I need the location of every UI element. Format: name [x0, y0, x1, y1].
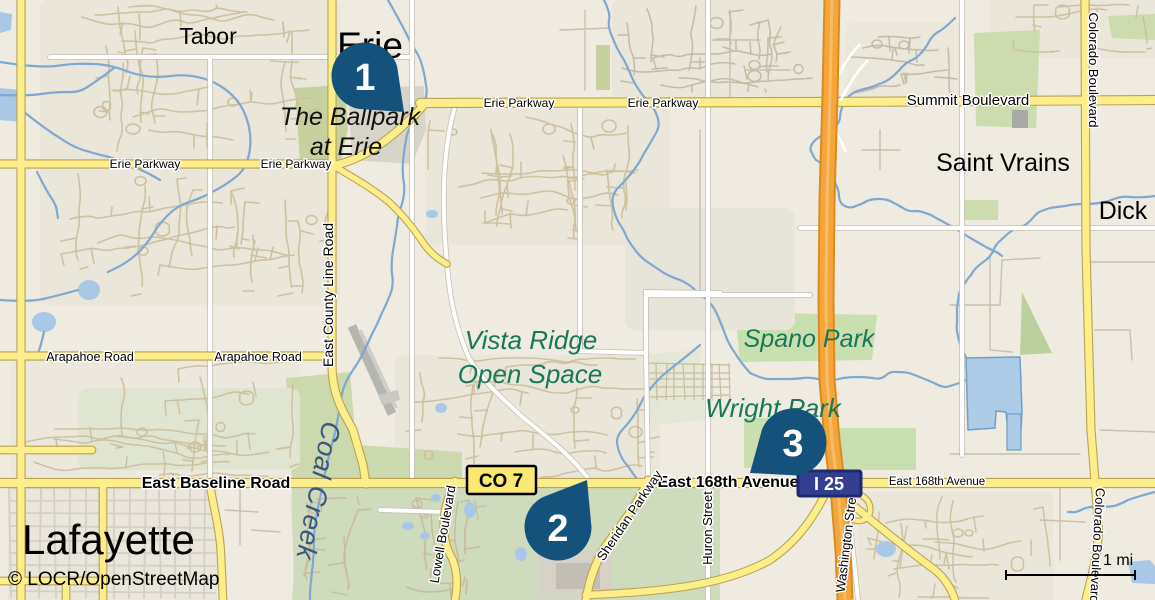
svg-text:CO 7: CO 7 — [479, 471, 523, 492]
svg-text:Huron Street: Huron Street — [700, 491, 715, 565]
svg-text:East County Line Road: East County Line Road — [320, 223, 336, 367]
svg-text:2: 2 — [547, 508, 568, 550]
svg-text:1: 1 — [354, 57, 375, 99]
svg-text:Lafayette: Lafayette — [22, 516, 195, 563]
svg-text:at Erie: at Erie — [310, 133, 382, 161]
svg-text:Summit Boulevard: Summit Boulevard — [907, 92, 1030, 109]
svg-text:Dick: Dick — [1099, 197, 1148, 225]
svg-text:Arapahoe Road: Arapahoe Road — [46, 350, 134, 364]
svg-text:East 168th Avenue: East 168th Avenue — [889, 476, 985, 488]
svg-text:Spano Park: Spano Park — [744, 325, 876, 353]
svg-text:© LOCR/OpenStreetMap: © LOCR/OpenStreetMap — [8, 569, 219, 590]
svg-text:I 25: I 25 — [814, 474, 844, 494]
svg-text:Saint Vrains: Saint Vrains — [936, 149, 1070, 177]
svg-text:Erie Parkway: Erie Parkway — [484, 96, 555, 110]
svg-text:Erie Parkway: Erie Parkway — [628, 96, 699, 110]
svg-text:3: 3 — [782, 423, 803, 465]
svg-text:East Baseline Road: East Baseline Road — [142, 475, 291, 492]
svg-text:Tabor: Tabor — [179, 23, 237, 49]
svg-text:Erie Parkway: Erie Parkway — [110, 157, 181, 171]
svg-text:East 168th Avenue: East 168th Avenue — [657, 474, 798, 491]
svg-text:Colorado Boulevard: Colorado Boulevard — [1086, 13, 1101, 128]
svg-text:Open Space: Open Space — [458, 359, 603, 389]
svg-text:1 mi: 1 mi — [1103, 552, 1133, 569]
svg-text:Arapahoe Road: Arapahoe Road — [214, 350, 302, 364]
svg-text:Vista Ridge: Vista Ridge — [465, 325, 598, 355]
